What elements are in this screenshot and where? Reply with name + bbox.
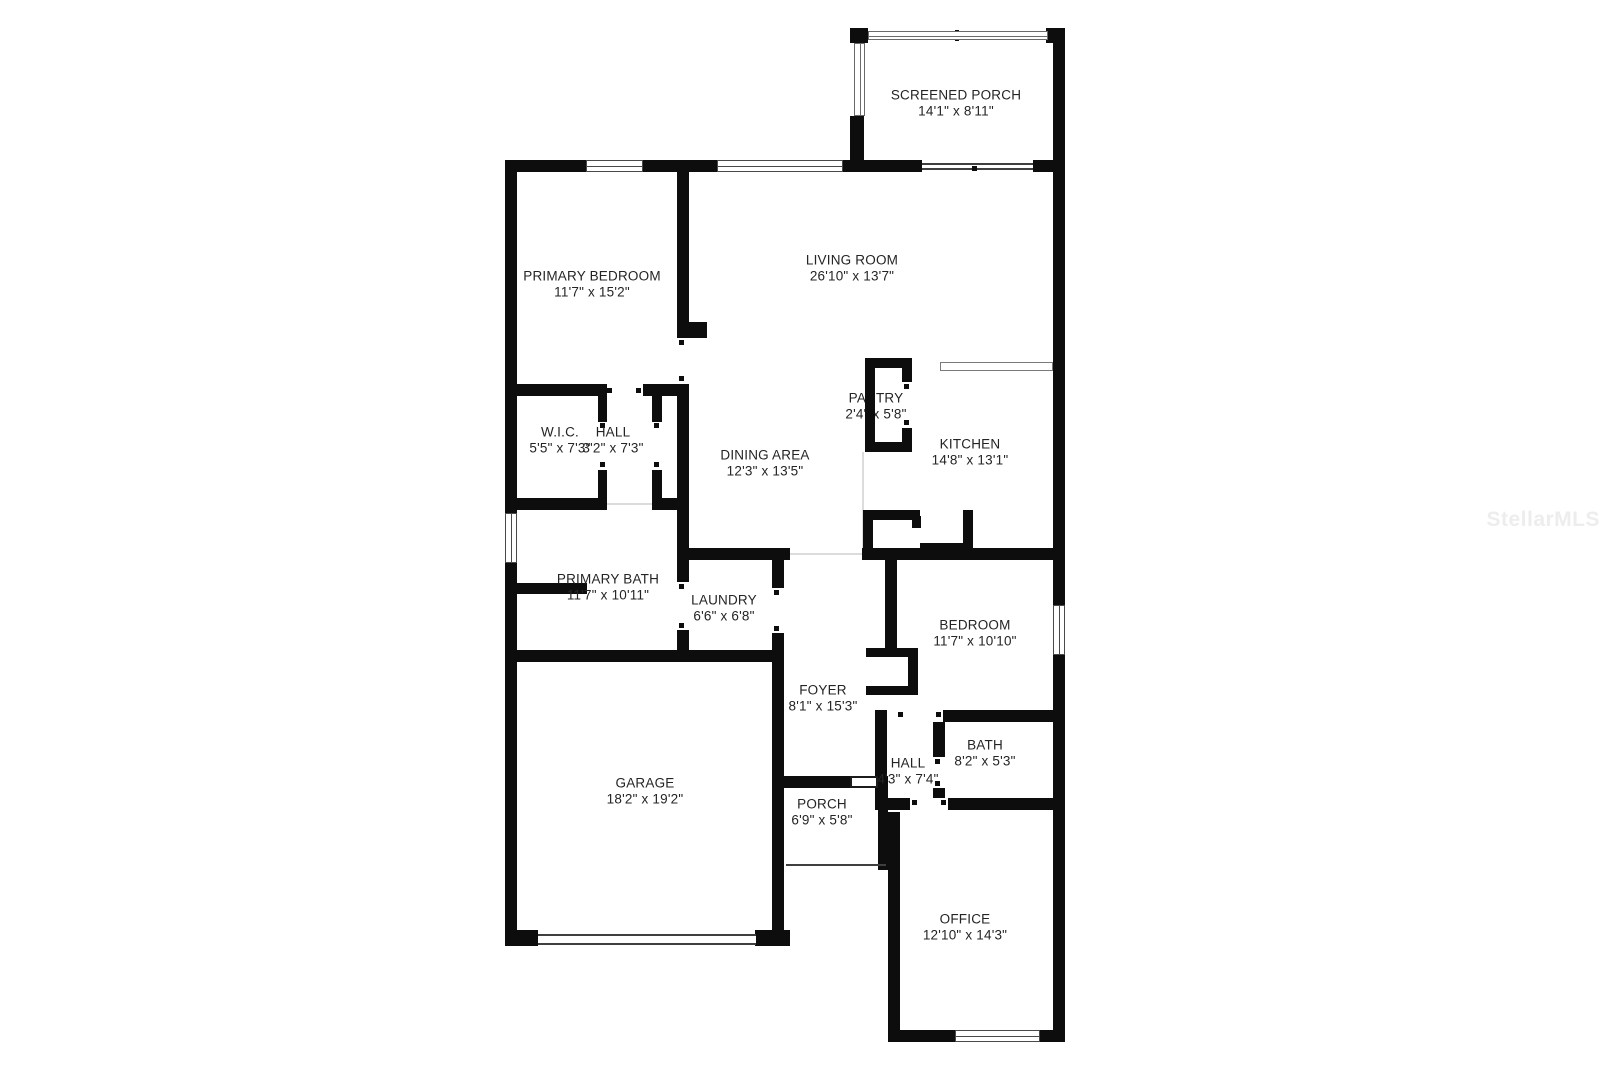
- kitchen-counter: [940, 362, 1053, 371]
- door-tick: [679, 623, 684, 628]
- wall-segment: [643, 160, 717, 172]
- wall-segment: [843, 160, 922, 172]
- room-name: BATH: [954, 738, 1015, 754]
- wall-segment: [850, 28, 868, 43]
- wall-segment: [652, 498, 689, 510]
- door-tick: [636, 388, 641, 393]
- wall-segment: [505, 498, 607, 510]
- floor-plan: SCREENED PORCH 14'1" x 8'11" PRIMARY BED…: [0, 0, 1600, 1066]
- wall-segment: [885, 560, 897, 650]
- room-label-bedroom: BEDROOM 11'7" x 10'10": [933, 618, 1016, 649]
- wall-segment: [912, 516, 921, 528]
- room-name: OFFICE: [923, 912, 1007, 928]
- room-dims: 4'3" x 7'4": [877, 771, 938, 787]
- room-dims: 12'10" x 14'3": [923, 927, 1007, 943]
- room-name: PANTRY: [845, 391, 906, 407]
- wall-segment: [677, 322, 707, 338]
- wall-segment: [677, 560, 689, 582]
- window: [1053, 605, 1065, 655]
- wall-segment: [888, 812, 900, 1042]
- wall-segment: [1053, 43, 1065, 160]
- room-name: BEDROOM: [933, 618, 1016, 634]
- opening-line: [607, 503, 652, 505]
- door-tick: [774, 626, 779, 631]
- screen-wall: [854, 43, 865, 116]
- room-dims: 8'2" x 5'3": [954, 753, 1015, 769]
- room-name: FOYER: [789, 683, 858, 699]
- room-name: HALL: [582, 425, 643, 441]
- wall-segment: [1046, 28, 1065, 43]
- room-name: PRIMARY BEDROOM: [523, 269, 661, 285]
- room-label-screened-porch: SCREENED PORCH 14'1" x 8'11": [891, 88, 1021, 119]
- wall-segment: [865, 358, 875, 452]
- wall-segment: [908, 648, 918, 695]
- door-tick: [679, 340, 684, 345]
- room-label-living-room: LIVING ROOM 26'10" x 13'7": [806, 253, 898, 284]
- wall-segment: [963, 510, 973, 546]
- porch-edge-line: [786, 864, 886, 866]
- wall-segment: [598, 396, 607, 422]
- room-dims: 11'7" x 10'11": [557, 587, 659, 603]
- wall-segment: [652, 396, 662, 422]
- wall-segment: [888, 1030, 958, 1042]
- room-dims: 18'2" x 19'2": [607, 791, 684, 807]
- room-label-hall-upper: HALL 3'2" x 7'3": [582, 425, 643, 456]
- window: [717, 160, 843, 172]
- room-label-porch: PORCH 6'9" x 5'8": [791, 797, 852, 828]
- wall-segment: [505, 930, 538, 946]
- door-tick: [679, 584, 684, 589]
- wall-segment: [677, 384, 689, 560]
- room-name: DINING AREA: [720, 448, 809, 464]
- room-name: GARAGE: [607, 776, 684, 792]
- garage-door: [538, 934, 756, 945]
- wall-segment: [643, 384, 689, 396]
- wall-segment: [505, 384, 607, 396]
- watermark: StellarMLS: [1486, 508, 1600, 532]
- room-label-garage: GARAGE 18'2" x 19'2": [607, 776, 684, 807]
- door-tick: [607, 388, 612, 393]
- room-name: PORCH: [791, 797, 852, 813]
- room-label-dining-area: DINING AREA 12'3" x 13'5": [720, 448, 809, 479]
- wall-segment: [943, 710, 1065, 722]
- room-dims: 6'6" x 6'8": [691, 608, 757, 624]
- wall-segment: [784, 776, 850, 788]
- room-label-kitchen: KITCHEN 14'8" x 13'1": [932, 437, 1009, 468]
- wall-segment: [505, 650, 784, 662]
- wall-segment: [948, 798, 1065, 810]
- opening-line: [790, 553, 862, 555]
- room-dims: 11'7" x 10'10": [933, 633, 1016, 649]
- front-door: [850, 776, 878, 788]
- sliding-door-opening: [922, 163, 1033, 170]
- room-dims: 14'1" x 8'11": [891, 103, 1021, 119]
- room-dims: 14'8" x 13'1": [932, 452, 1009, 468]
- wall-segment: [878, 776, 888, 870]
- door-tick: [941, 800, 946, 805]
- door-tick: [774, 590, 779, 595]
- room-dims: 6'9" x 5'8": [791, 812, 852, 828]
- room-dims: 26'10" x 13'7": [806, 268, 898, 284]
- room-name: LAUNDRY: [691, 593, 757, 609]
- wall-segment: [1053, 160, 1065, 605]
- room-dims: 11'7" x 15'2": [523, 284, 661, 300]
- door-tick: [654, 423, 659, 428]
- door-tick: [912, 800, 917, 805]
- room-label-primary-bedroom: PRIMARY BEDROOM 11'7" x 15'2": [523, 269, 661, 300]
- door-tick: [898, 712, 903, 717]
- door-tick: [654, 462, 659, 467]
- room-label-foyer: FOYER 8'1" x 15'3": [789, 683, 858, 714]
- wall-segment: [902, 358, 912, 382]
- wall-segment: [850, 116, 864, 160]
- screen-wall: [868, 31, 1048, 40]
- window: [586, 160, 643, 172]
- door-tick: [972, 166, 977, 171]
- wall-segment: [772, 633, 784, 945]
- room-label-hall-lower: HALL 4'3" x 7'4": [877, 756, 938, 787]
- wall-segment: [863, 510, 873, 560]
- window: [505, 513, 517, 563]
- wall-segment: [505, 563, 517, 945]
- room-label-pantry: PANTRY 2'4" x 5'8": [845, 391, 906, 422]
- wall-segment: [677, 630, 689, 662]
- room-name: PRIMARY BATH: [557, 572, 659, 588]
- door-tick: [679, 376, 684, 381]
- room-label-laundry: LAUNDRY 6'6" x 6'8": [691, 593, 757, 624]
- room-label-office: OFFICE 12'10" x 14'3": [923, 912, 1007, 943]
- room-name: HALL: [877, 756, 938, 772]
- door-tick: [936, 712, 941, 717]
- room-dims: 12'3" x 13'5": [720, 463, 809, 479]
- room-name: LIVING ROOM: [806, 253, 898, 269]
- room-name: SCREENED PORCH: [891, 88, 1021, 104]
- wall-segment: [1038, 1030, 1065, 1042]
- room-dims: 2'4" x 5'8": [845, 406, 906, 422]
- wall-segment: [772, 548, 784, 588]
- door-tick: [904, 420, 909, 425]
- wall-segment: [505, 160, 517, 513]
- door-tick: [904, 384, 909, 389]
- window: [955, 1030, 1040, 1042]
- wall-segment: [865, 442, 912, 452]
- room-label-primary-bath: PRIMARY BATH 11'7" x 10'11": [557, 572, 659, 603]
- wall-segment: [677, 172, 689, 322]
- room-name: KITCHEN: [932, 437, 1009, 453]
- room-label-bath: BATH 8'2" x 5'3": [954, 738, 1015, 769]
- wall-segment: [933, 788, 945, 798]
- door-tick: [600, 462, 605, 467]
- wall-segment: [933, 722, 945, 757]
- room-dims: 3'2" x 7'3": [582, 440, 643, 456]
- wall-segment: [505, 160, 586, 172]
- room-dims: 8'1" x 15'3": [789, 698, 858, 714]
